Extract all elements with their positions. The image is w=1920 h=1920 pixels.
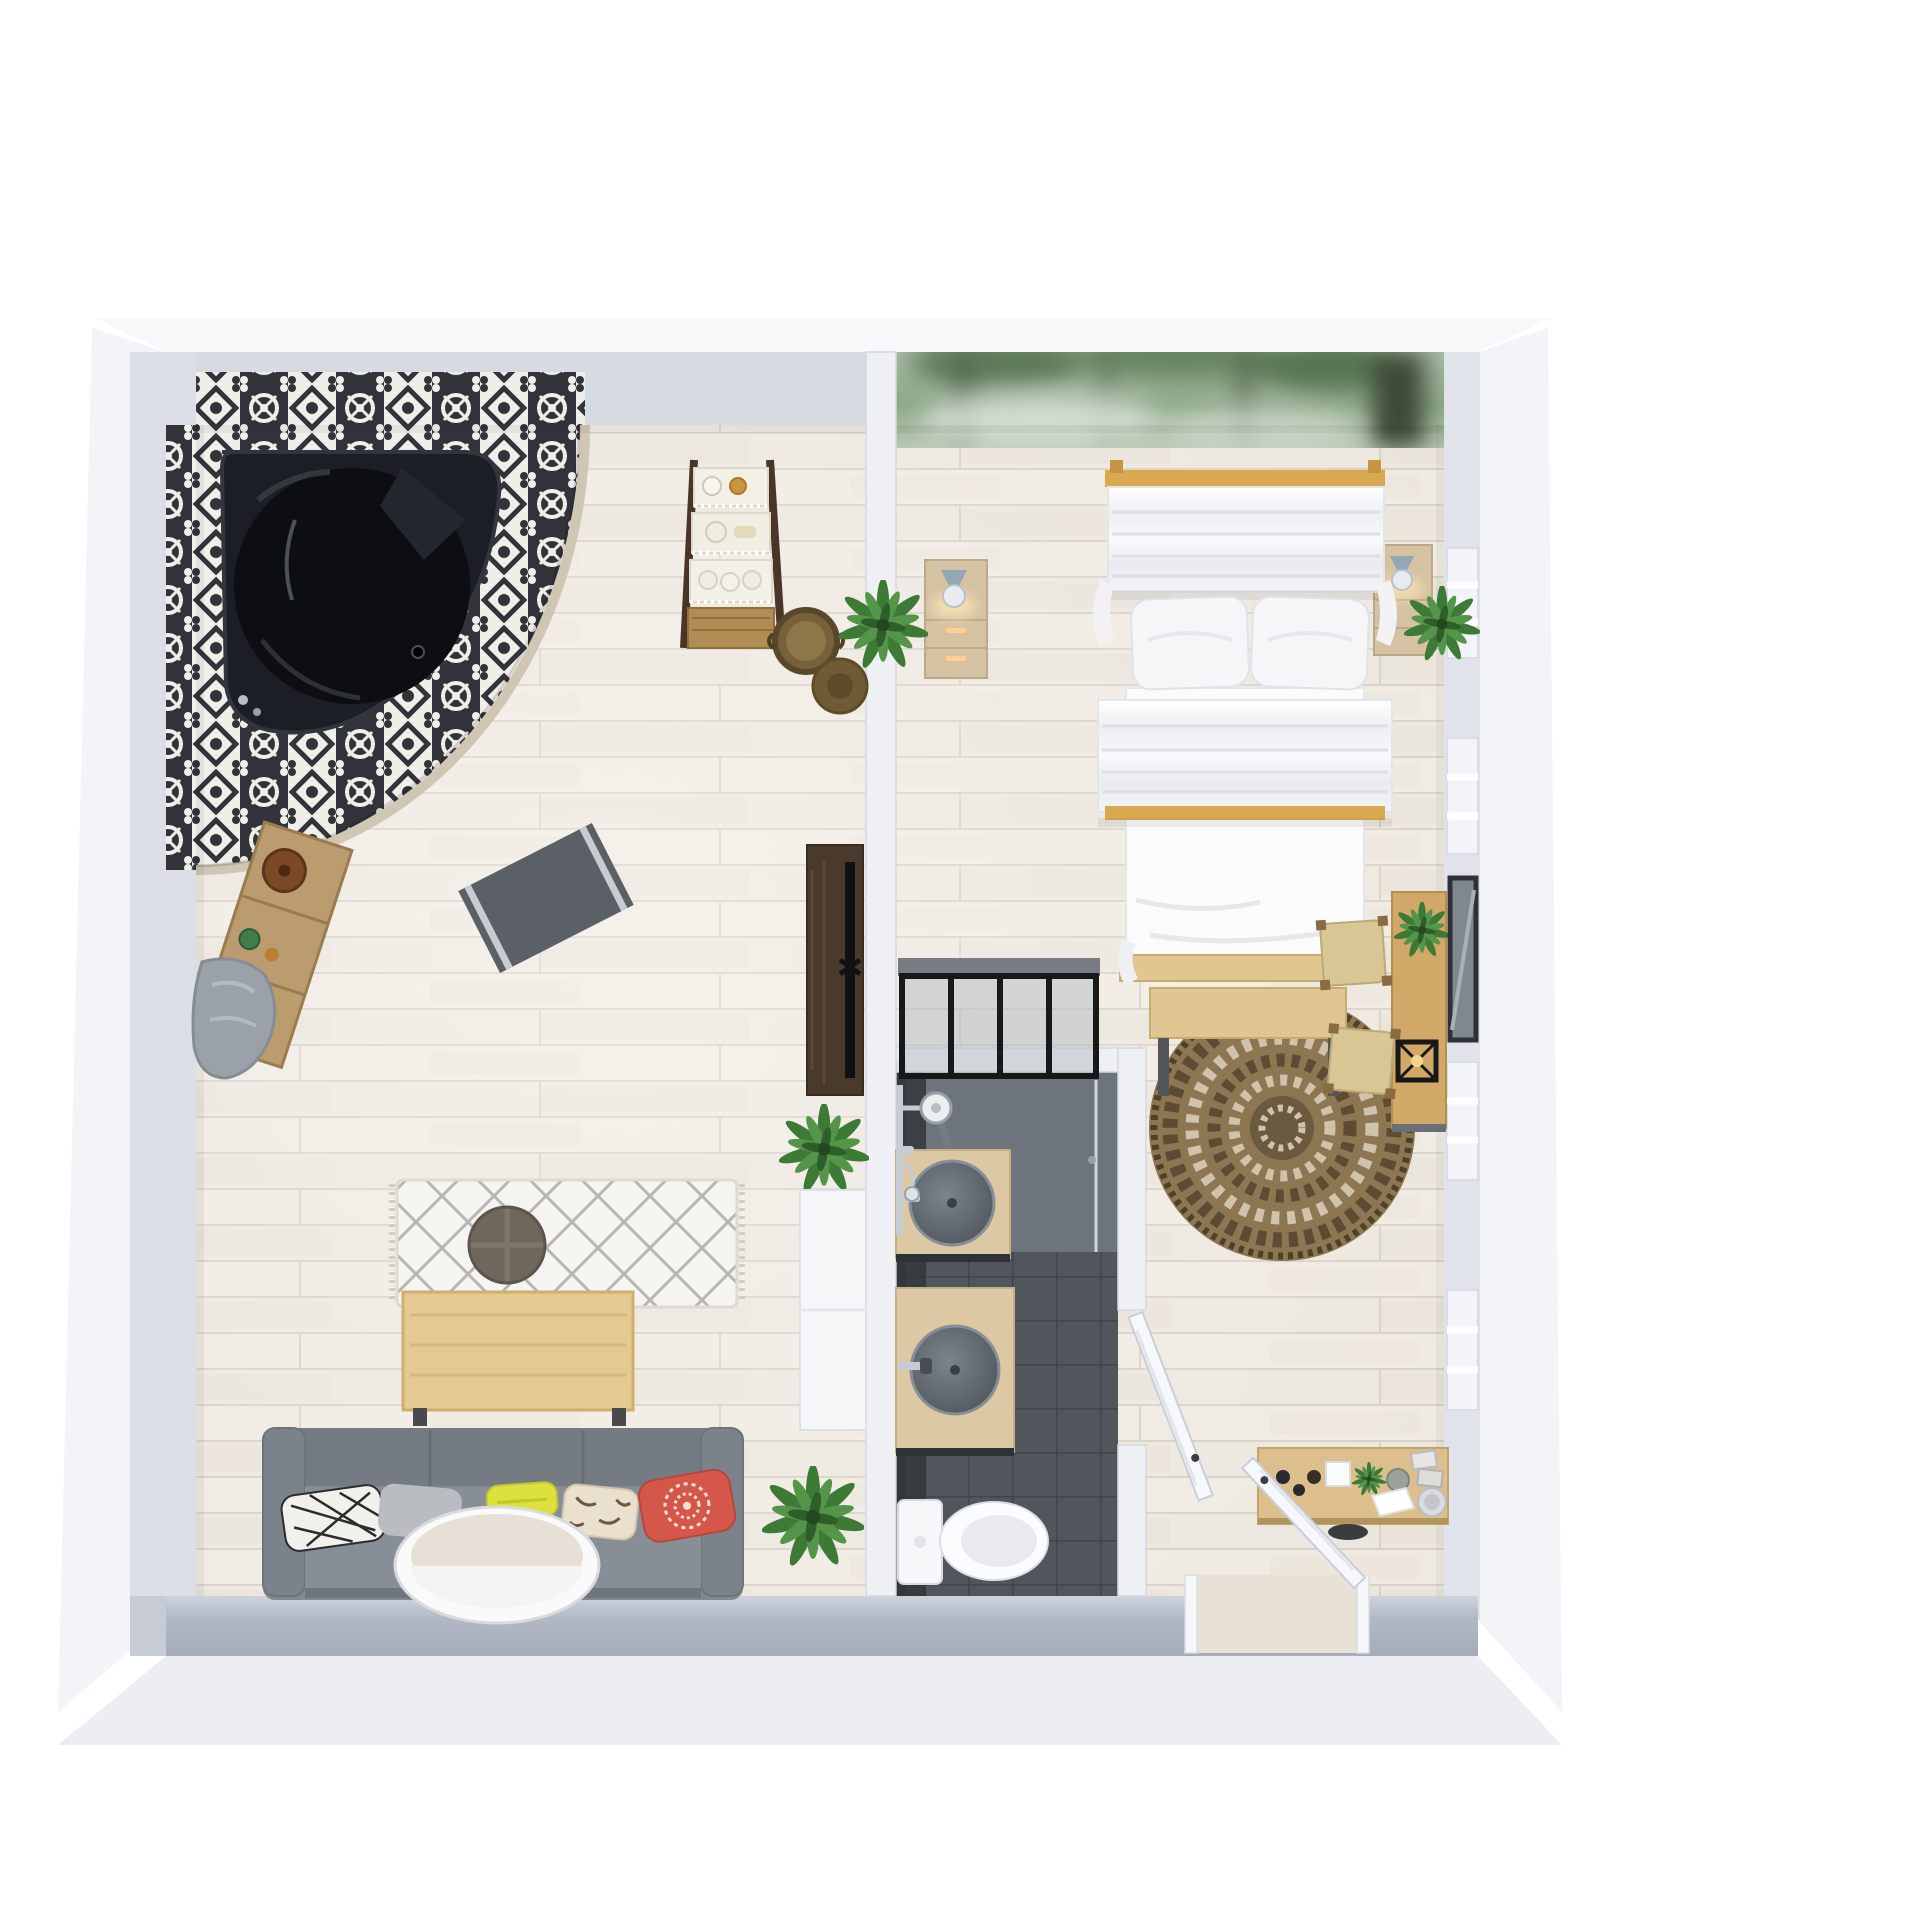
book-1 [1411,1450,1437,1469]
bottom-left-corner [130,1596,166,1656]
bench-top [1150,988,1346,1038]
hand-shower [905,1187,919,1201]
faucet-handle [920,1358,932,1374]
table-leg-left [413,1408,427,1426]
basin-drain-2 [950,1365,960,1375]
bed-pillow-left [1130,596,1249,690]
towel-roll-1 [699,571,717,589]
under-shelf-items [1328,1524,1368,1540]
shower-head-center [931,1103,941,1113]
partition-wall [866,352,896,1596]
window-4 [1447,1290,1478,1410]
toilet [898,1500,1048,1584]
basket-4-wicker [688,608,774,648]
head-rail [1105,470,1385,487]
plate-inner [1424,1494,1440,1510]
diamond-pattern-rug [397,1180,737,1307]
bottle-1 [1276,1470,1290,1484]
basin-drain-1 [947,1198,957,1208]
floor-plan-render [0,0,1920,1920]
towel-roll-3 [743,571,761,589]
ladder-shelf [684,460,782,648]
glass-partition [898,958,1100,1078]
stool-1 [1316,916,1393,991]
table-leg-right [612,1408,626,1426]
towel-roll-2 [721,573,739,591]
toilet-seat [961,1515,1037,1567]
bottom-wall-outer [58,1656,1562,1745]
glass-handle [1088,1156,1096,1164]
wood-coffee-table [403,1292,633,1426]
lamp-base-left [943,585,965,607]
tile-wainscot-top [196,372,585,425]
vanity-shadow-2 [896,1448,1014,1456]
bed-post-tl [1110,460,1123,473]
bottle-3 [1307,1470,1321,1484]
entry-jamb-left [1185,1575,1197,1653]
bottle-2 [1293,1484,1305,1496]
vanity-1 [896,1150,1010,1262]
basket-interior [786,621,826,661]
drawer-glow-2 [946,656,966,661]
soap-dish [706,522,726,542]
white-box [1326,1462,1350,1486]
nightstand-left [925,560,987,678]
bathroom-east-wall-lower [1118,1445,1146,1596]
tub-drain [412,646,424,658]
entry-jamb-right [1357,1575,1369,1653]
sofa-backrest [275,1428,731,1486]
table-top [403,1292,633,1410]
ao-top [196,425,1444,433]
mixer-valve [896,1146,914,1155]
faucet-2 [898,1362,922,1370]
bench-leg-left [1158,1038,1169,1096]
canopy-band-mid [1098,700,1392,827]
mid-rail [1105,806,1385,820]
window-3 [1447,1062,1478,1180]
bathroom-east-wall-upper [1118,1048,1146,1310]
jar-white [703,477,721,495]
entry-threshold [1197,1575,1357,1653]
vanity-2 [896,1288,1014,1456]
basket-2 [692,513,770,553]
oval-coffee-table [395,1507,599,1623]
bed-post-tr [1368,460,1381,473]
top-wall-outer [96,318,1552,352]
jar-amber [730,478,746,494]
soap-bar [734,526,756,538]
vanity-shadow-1 [896,1254,1010,1262]
floor-plan-stage [0,0,1920,1920]
console-edge [1258,1518,1448,1524]
drawer-glow-1 [946,628,966,633]
window-2 [1447,738,1478,854]
tub-faucet [238,695,248,705]
desk-leg-edge [1392,1124,1446,1132]
flush-button [914,1536,926,1548]
tv-unit [807,845,863,1095]
lamp-base-right [1392,570,1412,590]
hat-crown [827,673,853,699]
tub-faucet-knob [253,708,261,716]
diamond-rug-area [392,1180,742,1307]
canopy-band-head [1108,487,1384,600]
tile-wainscot-left [166,425,196,870]
book-2 [1417,1469,1443,1487]
stool-2 [1323,1023,1401,1099]
shower-column [896,1085,903,1235]
canopy-bed [1093,460,1397,986]
right-wall-outer [1478,328,1562,1712]
bed-pillow-right [1250,596,1369,690]
